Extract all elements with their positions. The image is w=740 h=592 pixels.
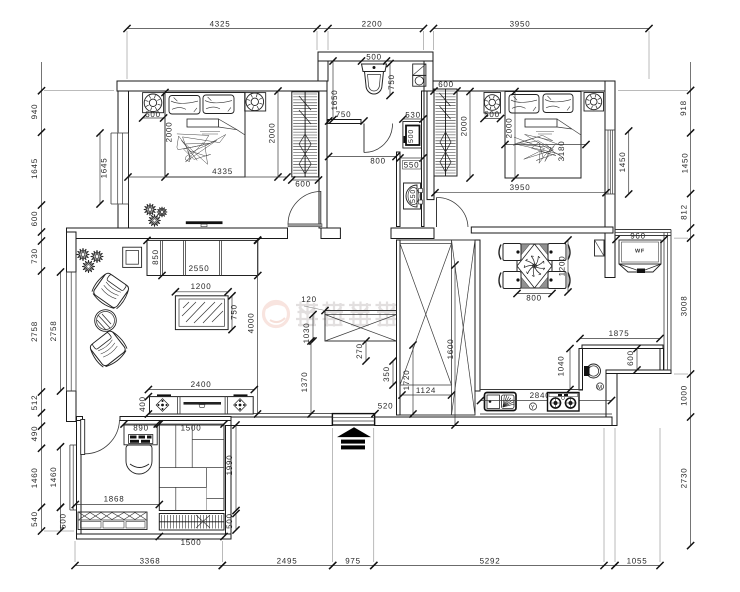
- svg-text:730: 730: [30, 248, 39, 264]
- svg-text:4325: 4325: [210, 19, 231, 28]
- svg-text:540: 540: [30, 511, 39, 527]
- svg-text:1720: 1720: [402, 370, 411, 391]
- svg-text:500: 500: [145, 110, 161, 119]
- svg-text:600: 600: [438, 80, 454, 89]
- svg-text:1370: 1370: [300, 372, 309, 393]
- svg-text:1040: 1040: [557, 356, 566, 377]
- svg-text:1500: 1500: [181, 538, 202, 547]
- svg-text:600: 600: [626, 350, 635, 366]
- svg-text:1000: 1000: [680, 385, 689, 406]
- svg-text:2758: 2758: [30, 321, 39, 342]
- svg-text:750: 750: [336, 110, 352, 119]
- svg-text:M: M: [597, 384, 603, 391]
- svg-text:1650: 1650: [330, 90, 339, 111]
- svg-text:975: 975: [345, 556, 361, 565]
- svg-text:750: 750: [230, 304, 239, 320]
- svg-text:1875: 1875: [609, 329, 630, 338]
- svg-text:512: 512: [30, 395, 39, 411]
- svg-text:550: 550: [410, 189, 417, 203]
- svg-text:2730: 2730: [680, 468, 689, 489]
- svg-text:2400: 2400: [191, 380, 212, 389]
- svg-text:2200: 2200: [362, 19, 383, 28]
- svg-text:1600: 1600: [446, 339, 455, 360]
- svg-text:1450: 1450: [681, 153, 690, 174]
- svg-text:120: 120: [301, 295, 317, 304]
- svg-text:2000: 2000: [165, 122, 174, 143]
- svg-text:1460: 1460: [49, 467, 58, 488]
- svg-text:WF: WF: [635, 249, 645, 255]
- svg-text:1500: 1500: [181, 424, 202, 433]
- svg-text:1645: 1645: [30, 158, 39, 179]
- svg-text:2495: 2495: [277, 556, 298, 565]
- svg-text:1460: 1460: [30, 467, 39, 488]
- svg-text:500: 500: [484, 110, 500, 119]
- svg-text:500: 500: [408, 129, 415, 143]
- svg-text:3008: 3008: [680, 296, 689, 317]
- svg-text:800: 800: [370, 157, 386, 166]
- svg-text:3950: 3950: [510, 183, 531, 192]
- svg-text:1990: 1990: [225, 455, 234, 476]
- svg-text:2000: 2000: [460, 116, 469, 137]
- svg-text:3180: 3180: [557, 141, 566, 162]
- svg-text:850: 850: [151, 249, 160, 265]
- svg-text:1645: 1645: [100, 158, 109, 179]
- svg-text:1030: 1030: [302, 323, 311, 344]
- svg-text:960: 960: [630, 232, 646, 241]
- svg-text:1200: 1200: [191, 282, 212, 291]
- svg-text:3950: 3950: [510, 19, 531, 28]
- svg-text:600: 600: [30, 211, 39, 227]
- svg-text:918: 918: [679, 100, 688, 116]
- svg-text:812: 812: [680, 204, 689, 220]
- svg-text:1200: 1200: [558, 256, 567, 277]
- svg-text:800: 800: [526, 294, 542, 303]
- svg-text:750: 750: [387, 74, 396, 90]
- svg-text:940: 940: [30, 104, 39, 120]
- svg-text:1124: 1124: [416, 386, 436, 395]
- svg-text:550: 550: [404, 161, 420, 170]
- svg-text:4000: 4000: [247, 313, 256, 334]
- svg-text:490: 490: [30, 426, 39, 442]
- svg-text:270: 270: [355, 343, 364, 359]
- svg-text:2000: 2000: [505, 118, 514, 139]
- svg-text:530: 530: [405, 111, 421, 120]
- svg-text:2550: 2550: [189, 264, 210, 273]
- svg-text:890: 890: [133, 424, 149, 433]
- svg-text:2000: 2000: [268, 123, 277, 144]
- svg-text:500: 500: [59, 513, 68, 529]
- svg-text:1868: 1868: [104, 495, 125, 504]
- svg-text:5292: 5292: [480, 556, 501, 565]
- svg-text:500: 500: [366, 53, 382, 62]
- svg-text:600: 600: [295, 180, 311, 189]
- svg-text:500: 500: [225, 513, 234, 529]
- svg-text:1450: 1450: [618, 152, 627, 173]
- svg-text:2758: 2758: [49, 321, 58, 342]
- svg-text:Y: Y: [531, 404, 536, 411]
- svg-text:350: 350: [382, 366, 391, 382]
- svg-text:3368: 3368: [140, 556, 161, 565]
- svg-text:1055: 1055: [627, 556, 648, 565]
- svg-text:4335: 4335: [212, 167, 233, 176]
- svg-text:520: 520: [378, 402, 394, 411]
